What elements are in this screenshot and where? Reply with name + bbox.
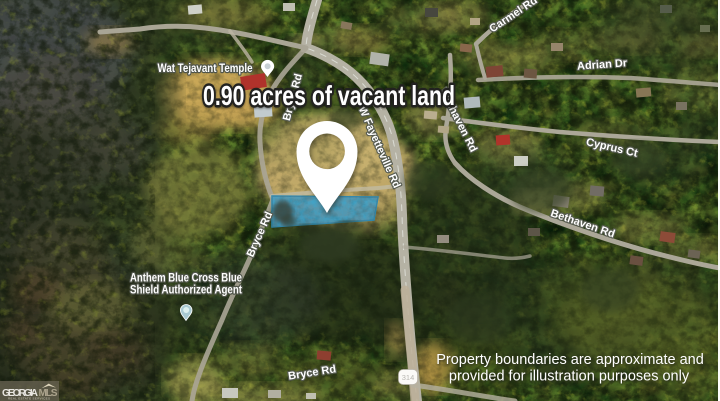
svg-text:Wat Tejavant Temple: Wat Tejavant Temple bbox=[158, 63, 253, 75]
svg-text:Anthem Blue Cross Blue: Anthem Blue Cross Blue bbox=[130, 273, 242, 285]
svg-text:REAL ESTATE SERVICES: REAL ESTATE SERVICES bbox=[8, 397, 50, 401]
svg-text:provided for illustration purp: provided for illustration purposes only bbox=[449, 369, 690, 385]
svg-text:Property boundaries are approx: Property boundaries are approximate and bbox=[436, 352, 704, 368]
svg-text:314: 314 bbox=[402, 373, 415, 382]
svg-text:0.90 acres of vacant land: 0.90 acres of vacant land bbox=[203, 80, 455, 111]
svg-text:Shield Authorized Agent: Shield Authorized Agent bbox=[130, 285, 242, 297]
